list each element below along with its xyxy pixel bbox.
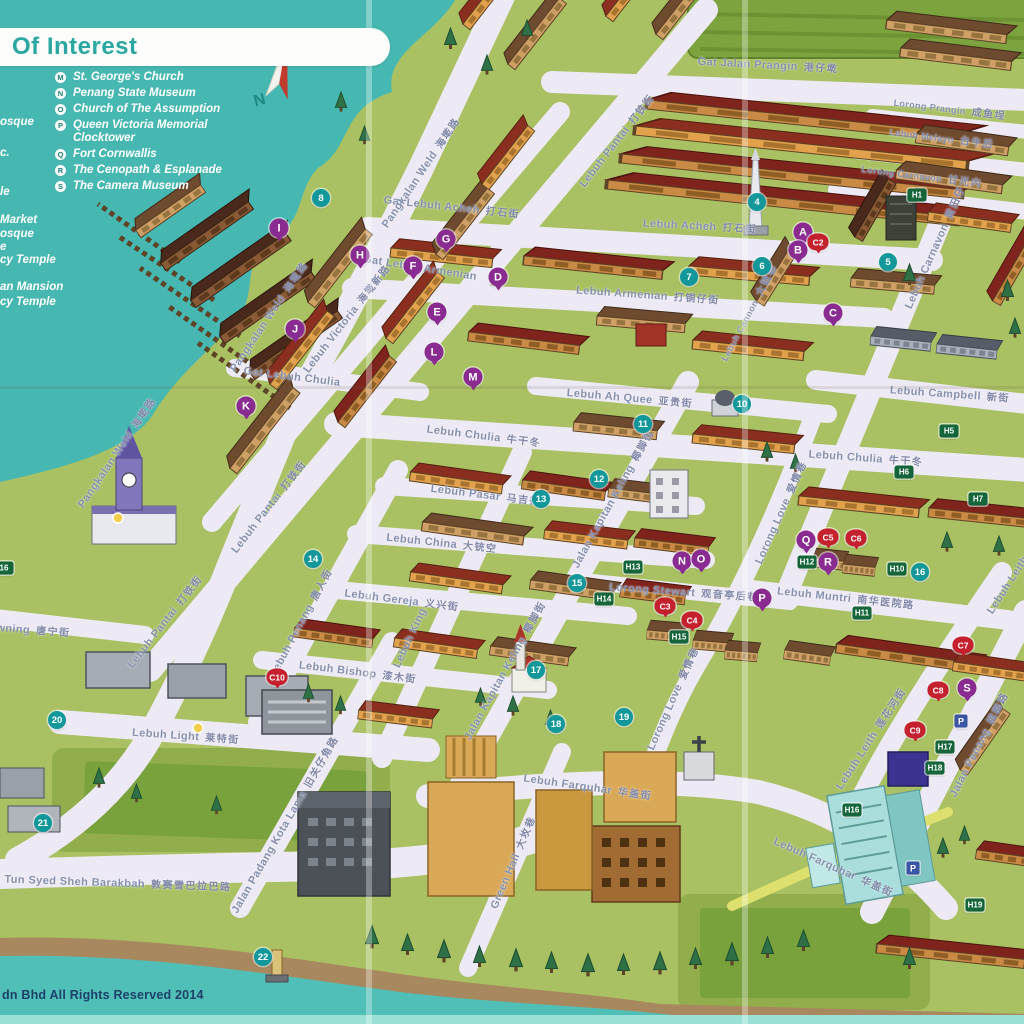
legend-title: Of Interest: [0, 28, 390, 66]
marker-heritage-H12: H12: [798, 556, 817, 569]
legend-item: PQueen Victoria Memorial Clocktower: [55, 119, 240, 145]
legend-item-label: Fort Cornwallis: [73, 148, 157, 161]
marker-letter-K: K: [237, 397, 256, 416]
marker-number-16: 16: [911, 563, 929, 581]
marker-number-12: 12: [590, 470, 608, 488]
legend-item: MSt. George's Church: [55, 71, 240, 84]
legend-bullet-icon: M: [55, 72, 66, 83]
map-paper-edge: [0, 1015, 1024, 1024]
marker-heritage-H11: H11: [853, 607, 872, 620]
marker-heritage-H15: H15: [670, 631, 689, 644]
legend-partial-item: cy Temple: [0, 296, 56, 308]
purple-building: [888, 752, 928, 786]
marker-letter-N: N: [673, 552, 692, 571]
marker-culinary-C5: C5: [818, 529, 839, 546]
legend-bullet-icon: R: [55, 165, 66, 176]
marker-culinary-C4: C4: [682, 612, 703, 629]
legend-partial-item: osque: [0, 116, 34, 128]
legend-item-label: Penang State Museum: [73, 87, 196, 100]
marker-heritage-H7: H7: [969, 493, 988, 506]
legend-partial-item: cy Temple: [0, 254, 56, 266]
street-lamp: [113, 513, 123, 523]
marker-culinary-C6: C6: [846, 530, 867, 547]
marker-letter-D: D: [489, 268, 508, 287]
marker-letter-M: M: [464, 368, 483, 387]
legend-partial-item: osque: [0, 228, 34, 240]
marker-number-7: 7: [680, 268, 698, 286]
legend-partial-item: Market: [0, 214, 37, 226]
marker-number-19: 19: [615, 708, 633, 726]
legend-title-pill: Of Interest: [0, 28, 390, 66]
marker-parking-P: P: [955, 715, 968, 728]
marker-letter-I: I: [270, 219, 289, 238]
marker-number-22: 22: [254, 948, 272, 966]
legend-partial-item: an Mansion: [0, 281, 63, 293]
marker-heritage-H6: H6: [895, 466, 914, 479]
marker-number-18: 18: [547, 715, 565, 733]
marker-letter-P: P: [753, 589, 772, 608]
marker-culinary-C9: C9: [905, 722, 926, 739]
marker-number-14: 14: [304, 550, 322, 568]
marker-culinary-C10: C10: [267, 669, 288, 686]
legend-item-label: The Camera Museum: [73, 180, 189, 193]
marker-number-8: 8: [312, 189, 330, 207]
marker-heritage-H5: H5: [940, 425, 959, 438]
marker-culinary-C8: C8: [928, 682, 949, 699]
marker-culinary-C7: C7: [953, 637, 974, 654]
marker-letter-O: O: [692, 550, 711, 569]
marker-number-4: 4: [748, 193, 766, 211]
legend-item: NPenang State Museum: [55, 87, 240, 100]
copyright-text: dn Bhd All Rights Reserved 2014: [2, 988, 204, 1002]
fold-crease: [366, 0, 372, 1024]
marker-number-17: 17: [527, 661, 545, 679]
legend-item-list: MSt. George's ChurchNPenang State Museum…: [55, 71, 255, 196]
legend-bullet-icon: N: [55, 88, 66, 99]
legend-bullet-icon: Q: [55, 149, 66, 160]
marker-letter-L: L: [425, 343, 444, 362]
marker-heritage-H1: H1: [908, 189, 927, 202]
fold-crease: [742, 0, 748, 1024]
marker-heritage-H17: H17: [936, 741, 955, 754]
georgetown-tourist-map: Gat Jalan Prangin港仔墘Lorong Prangin成鱼埕Leb…: [0, 0, 1024, 1024]
legend-item: QFort Cornwallis: [55, 148, 240, 161]
marker-heritage-H13: H13: [624, 561, 643, 574]
marker-letter-G: G: [437, 230, 456, 249]
marker-letter-S: S: [958, 679, 977, 698]
marker-heritage-16: 16: [0, 562, 14, 575]
legend-item-label: St. George's Church: [73, 71, 184, 84]
legend-item-label: Queen Victoria Memorial Clocktower: [73, 119, 240, 145]
legend-item: OChurch of The Assumption: [55, 103, 240, 116]
marker-heritage-H19: H19: [966, 899, 985, 912]
fold-crease: [0, 386, 1024, 389]
marker-letter-B: B: [789, 241, 808, 260]
marker-letter-R: R: [819, 553, 838, 572]
marker-letter-F: F: [404, 257, 423, 276]
marker-heritage-H18: H18: [926, 762, 945, 775]
marker-letter-J: J: [286, 320, 305, 339]
legend-bullet-icon: O: [55, 104, 66, 115]
marker-number-15: 15: [568, 574, 586, 592]
marker-number-5: 5: [879, 253, 897, 271]
marker-number-13: 13: [532, 490, 550, 508]
legend-bullet-icon: S: [55, 181, 66, 192]
legend-partial-item: e: [0, 241, 6, 253]
legend-partial-item: c.: [0, 147, 10, 159]
legend-item: SThe Camera Museum: [55, 180, 240, 193]
marker-culinary-C3: C3: [655, 598, 676, 615]
legend-item: RThe Cenopath & Esplanade: [55, 164, 240, 177]
marker-heritage-H16: H16: [843, 804, 862, 817]
marker-letter-C: C: [824, 304, 843, 323]
marker-number-11: 11: [634, 415, 652, 433]
legend-bullet-icon: P: [55, 120, 66, 131]
marker-parking-P: P: [907, 862, 920, 875]
marker-letter-E: E: [428, 303, 447, 322]
marker-heritage-H14: H14: [595, 593, 614, 606]
marker-heritage-H10: H10: [888, 563, 907, 576]
legend-item-label: The Cenopath & Esplanade: [73, 164, 222, 177]
marker-number-6: 6: [753, 257, 771, 275]
legend-partial-item: le: [0, 186, 10, 198]
legend-item-label: Church of The Assumption: [73, 103, 220, 116]
marker-letter-Q: Q: [797, 531, 816, 550]
marker-number-21: 21: [34, 814, 52, 832]
marker-number-20: 20: [48, 711, 66, 729]
marker-culinary-C2: C2: [808, 234, 829, 251]
